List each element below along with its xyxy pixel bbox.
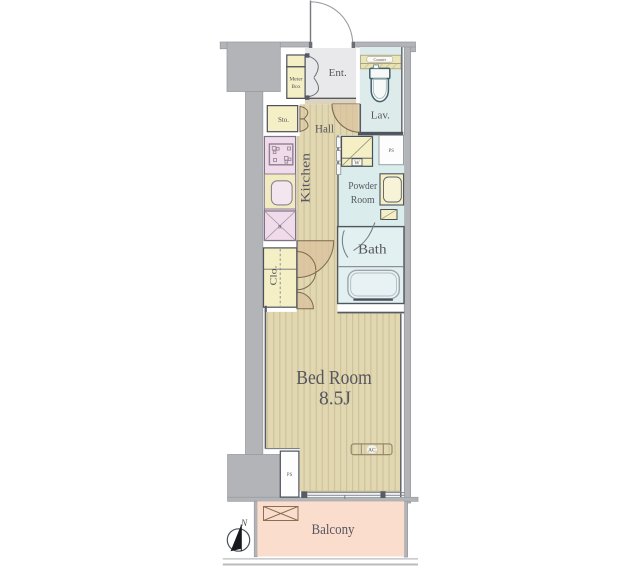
svg-text:N: N	[240, 519, 248, 529]
svg-text:8.5J: 8.5J	[319, 389, 351, 410]
svg-text:PS: PS	[287, 473, 293, 478]
svg-text:Bed Room: Bed Room	[296, 368, 372, 389]
svg-text:Bath: Bath	[358, 243, 387, 258]
svg-text:Kitchen: Kitchen	[299, 152, 313, 203]
svg-text:Balcony: Balcony	[312, 522, 356, 538]
svg-text:Room: Room	[351, 195, 375, 206]
svg-text:Sto.: Sto.	[278, 116, 289, 124]
svg-text:Lav.: Lav.	[371, 109, 390, 121]
svg-text:Powder: Powder	[348, 181, 377, 192]
svg-text:Counter: Counter	[374, 58, 387, 62]
svg-text:Meter: Meter	[289, 76, 302, 82]
svg-text:Box: Box	[291, 84, 301, 90]
svg-text:Ent.: Ent.	[329, 67, 347, 79]
svg-text:W: W	[354, 161, 360, 167]
svg-text:R: R	[278, 225, 282, 231]
svg-text:AC: AC	[368, 448, 376, 454]
svg-text:Hall: Hall	[315, 121, 335, 135]
svg-text:Clo.: Clo.	[270, 266, 280, 286]
svg-text:PS: PS	[389, 149, 395, 154]
